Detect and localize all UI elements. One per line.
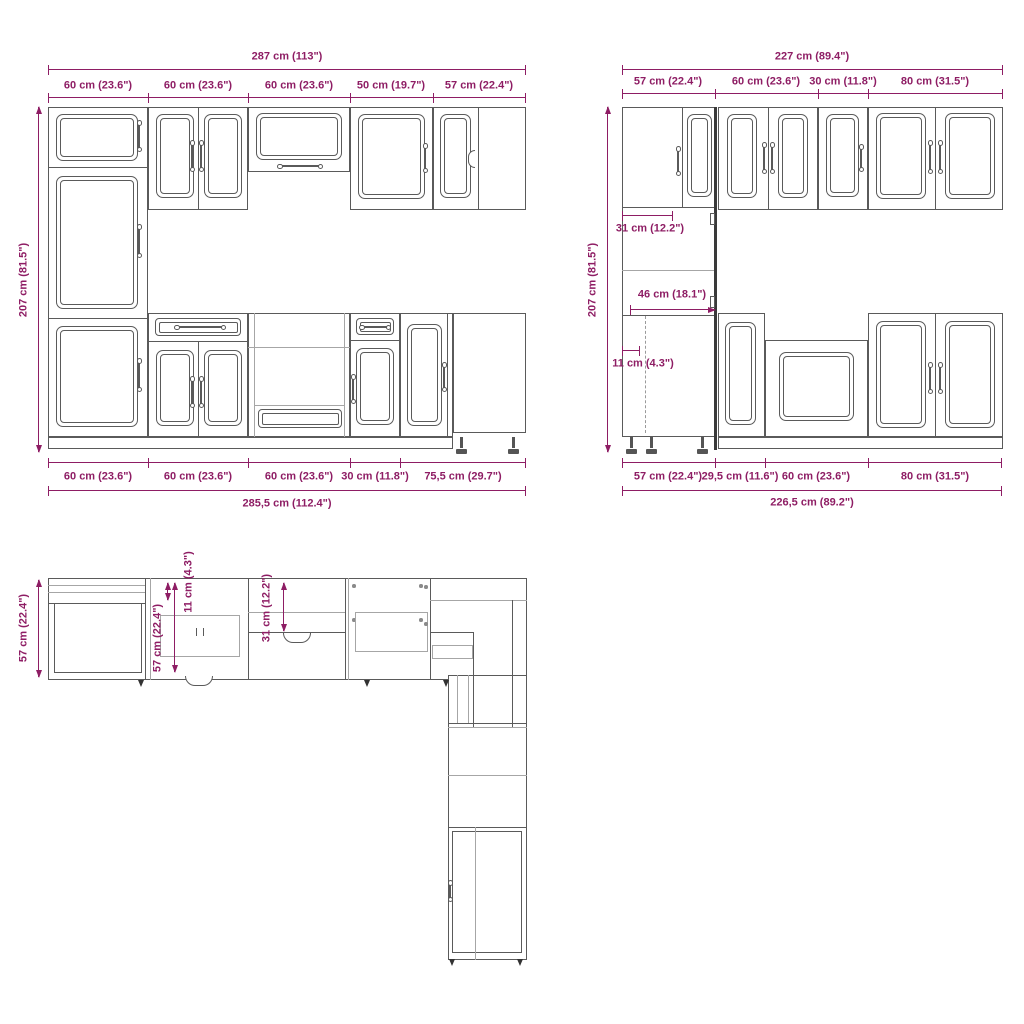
- door-handle: [138, 124, 140, 148]
- door-handle: [138, 362, 140, 388]
- plan-handle-mark: [196, 628, 197, 636]
- plan-line: [145, 578, 146, 680]
- door-handle: [468, 150, 475, 168]
- cabinet-line: [935, 107, 936, 210]
- drawer-front: [258, 409, 342, 428]
- dim-label: 60 cm (23.6"): [64, 472, 132, 483]
- plan-line: [448, 727, 527, 728]
- dim-label: 31 cm (12.2"): [262, 574, 273, 642]
- dim-label: 50 cm (19.7"): [357, 81, 425, 92]
- cabinet-line: [254, 405, 344, 406]
- door-panel: [826, 114, 859, 197]
- door-handle: [200, 144, 202, 168]
- corner-base-side: [453, 313, 526, 433]
- dim-label: 60 cm (23.6"): [164, 81, 232, 92]
- foot-mark: [517, 959, 523, 966]
- plan-line: [448, 775, 527, 776]
- plan-line: [475, 827, 476, 960]
- dim-label: 60 cm (23.6"): [164, 472, 232, 483]
- dim-label: 30 cm (11.8"): [809, 77, 877, 88]
- dim-total-top: [48, 69, 526, 70]
- dim-label: 57 cm (22.4"): [634, 472, 702, 483]
- door-panel: [56, 114, 138, 161]
- dim-label: 60 cm (23.6"): [64, 81, 132, 92]
- plan-line: [430, 578, 431, 680]
- plan-cabinet-front: [160, 615, 240, 657]
- door-panel: [407, 324, 442, 426]
- dim-label: 207 cm (81.5"): [588, 243, 599, 317]
- door-handle: [352, 378, 354, 400]
- dim-label: 285,5 cm (112.4"): [243, 499, 332, 510]
- dim-label: 11 cm (4.3"): [184, 551, 195, 612]
- door-panel: [256, 113, 342, 160]
- cabinet-line: [622, 270, 715, 271]
- door-handle: [138, 228, 140, 254]
- dim-label: 57 cm (22.4"): [445, 81, 513, 92]
- door-panel: [779, 352, 854, 421]
- cabinet-line: [254, 313, 255, 437]
- cabinet-line: [48, 318, 148, 319]
- cabinet-line: [478, 107, 479, 210]
- door-panel: [876, 113, 926, 199]
- dim-height: [607, 107, 608, 452]
- dim-label: 60 cm (23.6"): [732, 77, 800, 88]
- door-panel: [778, 114, 808, 198]
- dim-plan-inner-depth: [174, 583, 175, 672]
- dim-segments-top: [48, 97, 526, 98]
- dim-label: 227 cm (89.4"): [775, 52, 849, 63]
- foot-mark: [364, 680, 370, 687]
- cabinet-line: [935, 313, 936, 437]
- dim-plan-front-inset: [167, 583, 168, 600]
- dim-total-bottom: [622, 490, 1002, 491]
- drawer-handle: [363, 326, 387, 328]
- plan-cabinet-front: [54, 603, 142, 673]
- dim-plinth-inset: [622, 350, 640, 351]
- dim-label: 31 cm (12.2"): [616, 224, 684, 235]
- door-panel: [876, 321, 926, 428]
- door-panel: [56, 176, 138, 309]
- cabinet-line: [447, 313, 448, 437]
- dim-label: 57 cm (22.4"): [634, 77, 702, 88]
- cabinet-leg: [456, 437, 467, 454]
- dim-total-bottom: [48, 490, 526, 491]
- door-handle: [200, 380, 202, 404]
- kitchen-cabinet-technical-drawing: { "colors": {"dimension": "#8e1d64", "li…: [0, 0, 1024, 1024]
- door-handle: [939, 366, 941, 390]
- door-panel: [356, 348, 394, 425]
- door-handle: [860, 148, 862, 168]
- cabinet-leg: [697, 437, 708, 454]
- plan-door-front: [452, 831, 522, 953]
- dim-segments-top: [622, 93, 1003, 94]
- cabinet-line: [198, 107, 199, 210]
- plan-line: [448, 827, 527, 828]
- cabinet-line: [768, 107, 769, 210]
- hidden-edge-dashed: [645, 316, 646, 433]
- plan-line: [48, 592, 145, 593]
- plan-line: [473, 632, 474, 727]
- dim-label: 57 cm (22.4"): [19, 594, 30, 662]
- foot-mark: [138, 680, 144, 687]
- plan-line: [448, 723, 527, 724]
- cabinet-line: [248, 347, 350, 348]
- door-handle: [424, 147, 426, 169]
- dim-label: 60 cm (23.6"): [265, 472, 333, 483]
- dim-label: 57 cm (22.4"): [153, 604, 164, 672]
- plan-line: [248, 578, 249, 680]
- door-handle: [443, 366, 445, 388]
- dim-plan-depth: [38, 580, 39, 677]
- door-handle: [191, 144, 193, 168]
- door-handle: [763, 146, 765, 170]
- plinth: [48, 437, 453, 449]
- plan-line: [468, 675, 469, 723]
- cabinet-line: [622, 315, 715, 316]
- hinge-dot: [352, 584, 356, 588]
- door-handle: [281, 165, 319, 167]
- door-handle: [677, 150, 679, 172]
- plan-handle-mark: [203, 628, 204, 636]
- cabinet-leg: [508, 437, 519, 454]
- door-panel: [440, 114, 471, 198]
- door-panel: [727, 114, 757, 198]
- cabinet-leg: [626, 437, 637, 454]
- door-panel: [156, 350, 194, 426]
- door-panel: [945, 321, 995, 428]
- dim-label: 75,5 cm (29.7"): [424, 472, 501, 483]
- door-panel: [156, 114, 194, 198]
- door-panel: [725, 322, 756, 425]
- door-handle: [929, 144, 931, 170]
- dim-label: 46 cm (18.1"): [638, 290, 706, 301]
- dim-segments-bottom: [622, 462, 1002, 463]
- door-panel: [687, 114, 712, 197]
- dim-label: 207 cm (81.5"): [19, 243, 30, 317]
- door-handle: [449, 884, 451, 898]
- plan-line: [430, 632, 474, 633]
- door-panel: [204, 350, 242, 426]
- door-panel: [204, 114, 242, 198]
- cabinet-line: [350, 340, 400, 341]
- plan-drawer-front: [432, 645, 473, 659]
- dim-label: 11 cm (4.3"): [612, 359, 673, 370]
- dim-label: 60 cm (23.6"): [265, 81, 333, 92]
- dim-height: [38, 107, 39, 452]
- dim-upper-depth: [622, 215, 673, 216]
- door-handle: [929, 366, 931, 390]
- hinge-dot: [424, 622, 428, 626]
- foot-mark: [449, 959, 455, 966]
- plan-line: [48, 585, 145, 586]
- dim-label: 226,5 cm (89.2"): [770, 498, 854, 509]
- dim-label: 30 cm (11.8"): [341, 472, 409, 483]
- cabinet-line: [48, 167, 148, 168]
- plan-line: [348, 578, 349, 680]
- door-handle: [771, 146, 773, 170]
- dim-label: 80 cm (31.5"): [901, 77, 969, 88]
- dim-counter-depth: [630, 309, 715, 310]
- door-panel: [358, 114, 425, 199]
- plan-line: [345, 578, 346, 680]
- door-handle: [191, 380, 193, 404]
- door-panel: [945, 113, 995, 199]
- cabinet-line: [622, 207, 715, 208]
- plan-line: [512, 600, 513, 727]
- dim-label: 80 cm (31.5"): [901, 472, 969, 483]
- hinge-dot: [419, 584, 423, 588]
- hinge-dot: [424, 585, 428, 589]
- cabinet-line: [344, 313, 345, 437]
- hinge: [710, 213, 715, 225]
- cabinet-leg: [646, 437, 657, 454]
- drawer-handle: [178, 326, 222, 328]
- side-panel: [714, 107, 717, 450]
- dim-label: 29,5 cm (11.6"): [702, 472, 779, 483]
- dim-total-top: [622, 69, 1003, 70]
- dim-segments-bottom: [48, 462, 526, 463]
- dim-label: 60 cm (23.6"): [782, 472, 850, 483]
- door-panel: [56, 326, 138, 427]
- door-handle: [939, 144, 941, 170]
- plan-cabinet-front: [355, 612, 428, 652]
- plinth: [718, 437, 1003, 449]
- cabinet-line: [198, 341, 199, 437]
- plan-line: [457, 675, 458, 723]
- dim-plan-wall-depth: [283, 583, 284, 631]
- cabinet-line: [682, 107, 683, 207]
- dim-label: 287 cm (113"): [252, 52, 323, 63]
- door-handle: [185, 676, 213, 686]
